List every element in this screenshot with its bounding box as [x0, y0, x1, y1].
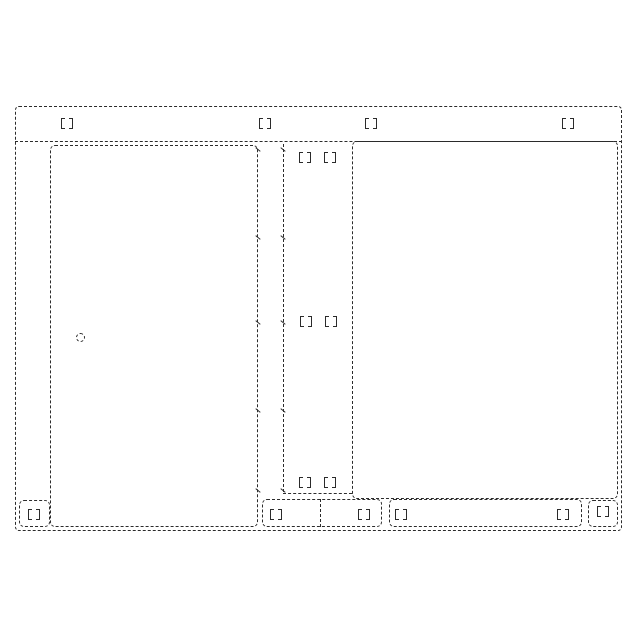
- column-mid-bracket-left: [300, 316, 312, 327]
- patent-line-drawing: [0, 0, 640, 640]
- hinge-strip-line: [283, 144, 284, 492]
- top-rail-bracket-1: [61, 118, 73, 129]
- top-rail-bracket-2: [259, 118, 271, 129]
- bottom-band-bracket-1: [270, 509, 282, 520]
- bottom-compartment-right: [389, 499, 582, 527]
- right-foot-bracket: [597, 506, 609, 517]
- bottom-band-bracket-4: [557, 509, 569, 520]
- left-foot-bracket: [28, 509, 40, 520]
- column-bottom-bracket-right: [324, 477, 336, 488]
- right-panel: [352, 141, 618, 499]
- top-rail-bracket-4: [562, 118, 574, 129]
- column-top-bracket-left: [299, 152, 311, 163]
- bottom-band-bracket-2: [358, 509, 370, 520]
- bottom-band-bracket-3: [395, 509, 407, 520]
- top-rail-line: [15, 141, 622, 142]
- column-bottom-bracket-left: [299, 477, 311, 488]
- column-mid-bracket-right: [325, 316, 337, 327]
- door-lock-keyhole: [76, 333, 85, 342]
- center-column-bottom-line: [283, 493, 352, 494]
- top-rail-bracket-3: [365, 118, 377, 129]
- bottom-compartment-divider: [320, 499, 321, 527]
- column-top-bracket-right: [324, 152, 336, 163]
